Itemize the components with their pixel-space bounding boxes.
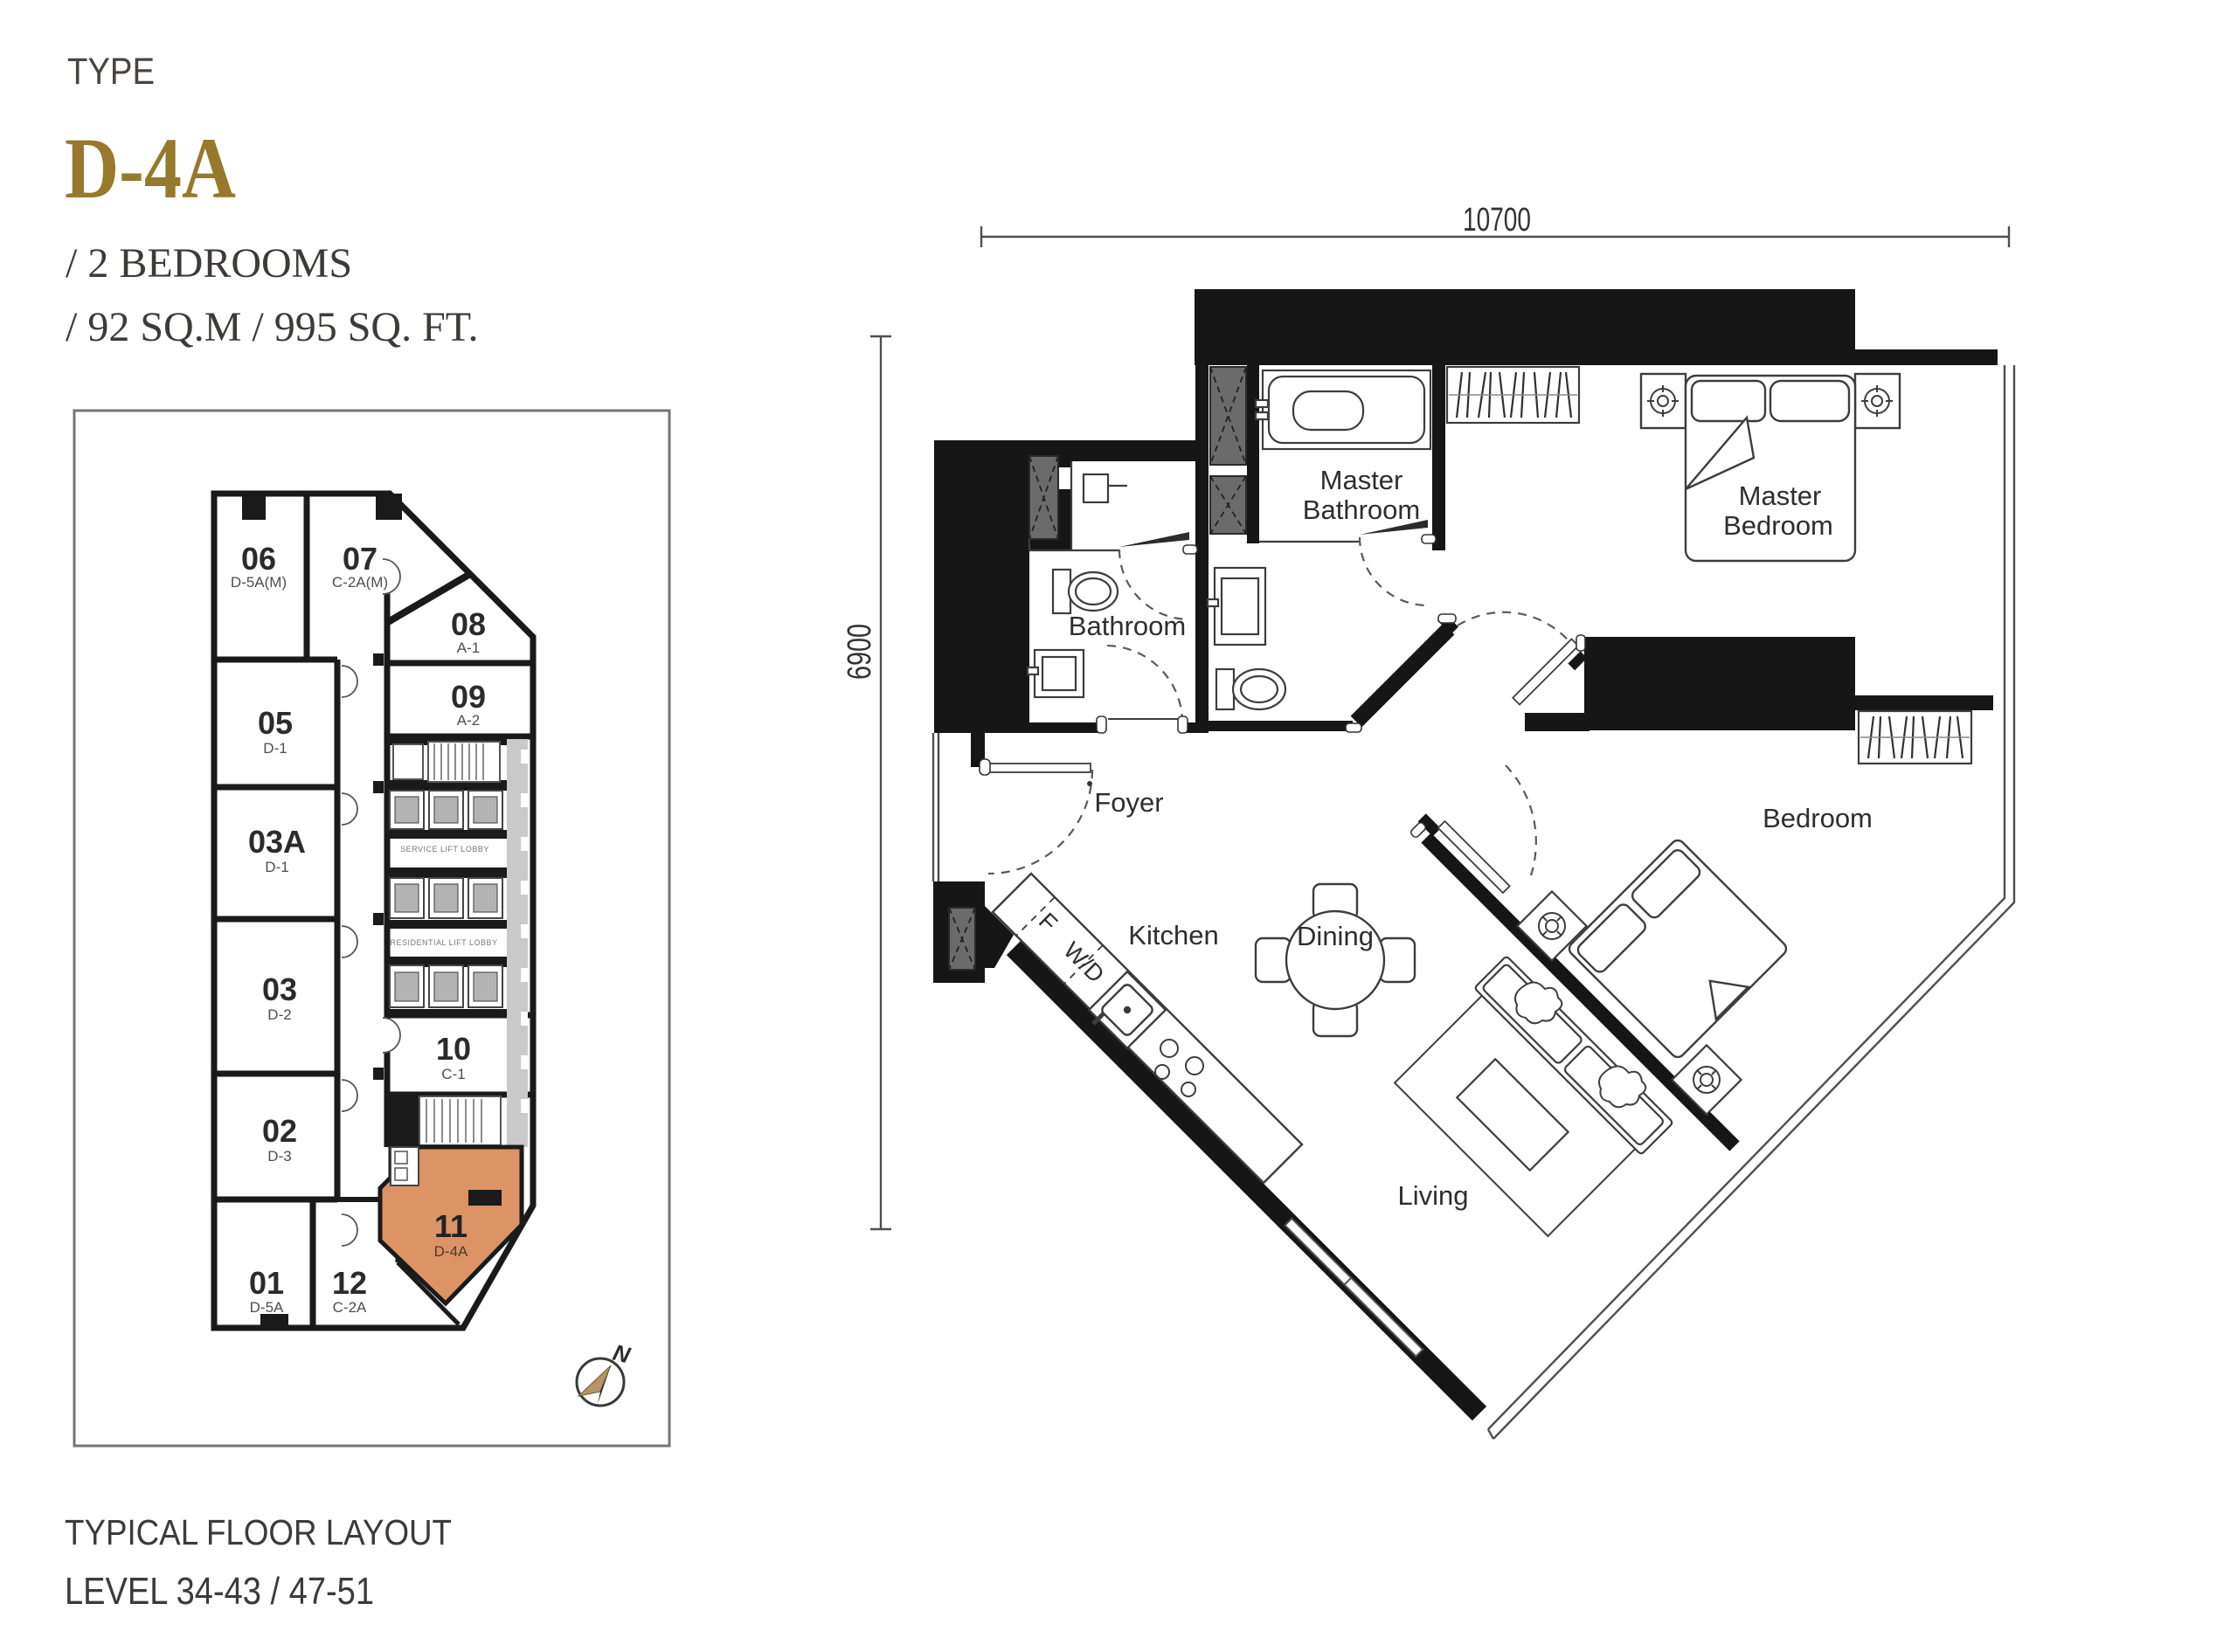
svg-text:D-3: D-3: [267, 1148, 291, 1165]
svg-text:12: 12: [332, 1265, 367, 1301]
svg-text:/ 2 BEDROOMS: / 2 BEDROOMS: [66, 240, 352, 287]
svg-text:10: 10: [436, 1031, 471, 1067]
svg-text:A-2: A-2: [457, 712, 480, 729]
svg-text:Kitchen: Kitchen: [1128, 920, 1218, 950]
svg-text:C-2A: C-2A: [333, 1299, 367, 1316]
svg-text:Bedroom: Bedroom: [1763, 803, 1873, 833]
svg-text:D-1: D-1: [265, 859, 288, 875]
svg-text:RESIDENTIAL LIFT LOBBY: RESIDENTIAL LIFT LOBBY: [390, 938, 497, 947]
svg-text:C-2A(M): C-2A(M): [332, 574, 388, 591]
svg-text:D-2: D-2: [267, 1006, 291, 1023]
svg-text:D-4A: D-4A: [65, 120, 236, 217]
svg-text:D-4A: D-4A: [434, 1243, 468, 1260]
svg-text:TYPICAL FLOOR LAYOUT: TYPICAL FLOOR LAYOUT: [65, 1512, 452, 1552]
svg-text:08: 08: [451, 606, 486, 642]
svg-text:Dining: Dining: [1297, 921, 1374, 951]
svg-text:LEVEL 34-43 / 47-51: LEVEL 34-43 / 47-51: [65, 1570, 374, 1613]
svg-text:D-5A: D-5A: [250, 1299, 284, 1316]
svg-text:01: 01: [249, 1265, 284, 1301]
svg-text:03: 03: [262, 971, 297, 1007]
svg-text:09: 09: [451, 679, 486, 715]
svg-text:A-1: A-1: [457, 639, 480, 656]
svg-text:6900: 6900: [841, 624, 878, 680]
svg-text:Living: Living: [1398, 1180, 1469, 1211]
svg-text:Bathroom: Bathroom: [1303, 494, 1420, 525]
svg-text:Foyer: Foyer: [1094, 787, 1163, 818]
svg-text:Master: Master: [1739, 480, 1822, 511]
svg-text:07: 07: [343, 541, 377, 577]
svg-text:/ 92 SQ.M / 995 SQ. FT.: / 92 SQ.M / 995 SQ. FT.: [66, 304, 479, 350]
svg-text:D-1: D-1: [263, 740, 287, 757]
svg-text:Master: Master: [1320, 465, 1403, 495]
svg-text:10700: 10700: [1463, 202, 1531, 238]
svg-text:11: 11: [434, 1208, 467, 1244]
svg-text:Bedroom: Bedroom: [1723, 510, 1833, 541]
svg-text:03A: 03A: [248, 824, 306, 860]
svg-text:SERVICE LIFT LOBBY: SERVICE LIFT LOBBY: [400, 845, 489, 854]
svg-text:D-5A(M): D-5A(M): [231, 574, 287, 591]
svg-text:Bathroom: Bathroom: [1069, 611, 1186, 641]
svg-text:C-1: C-1: [441, 1066, 465, 1082]
svg-text:05: 05: [258, 705, 293, 741]
svg-text:06: 06: [241, 541, 276, 577]
svg-text:02: 02: [262, 1113, 297, 1149]
svg-text:TYPE: TYPE: [67, 51, 155, 93]
